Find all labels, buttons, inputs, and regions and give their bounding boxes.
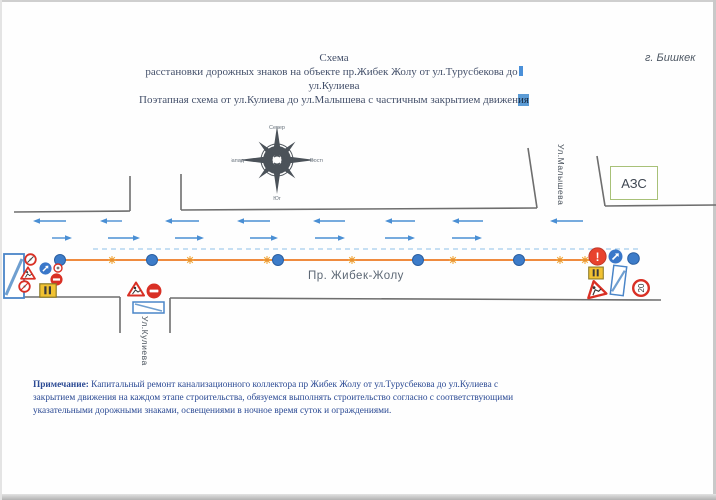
striped-barrier-panel-icon — [132, 301, 165, 314]
scheme-title: Схема расстановки дорожных знаков на объ… — [95, 51, 573, 107]
title-line-1: Схема — [95, 51, 573, 65]
roadworks-warning-sign-icon — [127, 281, 145, 297]
compass-east-label: Восток — [310, 158, 323, 164]
note-text: Примечание: Капитальный ремонт канализац… — [33, 379, 527, 417]
no-entry-sign-icon — [146, 283, 162, 299]
roadworks-warning-sign-icon — [20, 266, 36, 280]
barrier-post-icon — [627, 252, 640, 265]
title-line-4: Поэтапная схема от ул.Кулиева до ул.Малы… — [95, 93, 573, 107]
no-stopping-sign-icon — [24, 253, 37, 266]
compass-north-label: Север — [269, 125, 285, 131]
street-malysheva-label: Ул.Малышева — [556, 144, 566, 214]
note-label: Примечание: — [33, 380, 89, 390]
compass-west-label: Запад — [231, 158, 245, 164]
signal-lamp-panel-icon — [39, 283, 57, 298]
prohibition-sign-icon — [18, 280, 31, 293]
scan-edge-bottom — [0, 494, 716, 500]
other-danger-sign-icon: ! — [588, 247, 607, 266]
text-cursor-artifact — [519, 66, 523, 76]
striped-barrier-panel-icon — [609, 264, 628, 297]
title-line-3: ул.Кулиева — [95, 79, 573, 93]
svg-text:20: 20 — [637, 283, 646, 292]
street-kulieva-label: Ул.Кулиева — [140, 316, 150, 374]
title-line-2: расстановки дорожных знаков на объекте п… — [95, 65, 573, 79]
gas-station-label: АЗС — [621, 176, 647, 191]
roadworks-warning-sign-icon — [583, 277, 608, 301]
road-name-label: Пр. Жибек-Жолу — [308, 270, 404, 282]
scan-edge-left — [0, 0, 2, 500]
gas-station-box: АЗС — [610, 166, 658, 200]
scanned-scheme-page: г. Бишкек Схема расстановки дорожных зна… — [0, 0, 716, 500]
small-warning-sign-icon — [53, 263, 63, 273]
city-label: г. Бишкек — [645, 52, 695, 64]
keep-direction-sign-icon — [608, 249, 623, 264]
compass-south-label: Юг — [273, 196, 281, 202]
selection-highlight-artifact: ия — [518, 94, 529, 106]
speed-limit-20-sign-icon: 20 — [632, 279, 650, 297]
svg-text:!: ! — [596, 252, 600, 264]
compass-rose: Север Юг Запад Восток — [231, 122, 323, 202]
scan-edge-top — [0, 0, 716, 2]
